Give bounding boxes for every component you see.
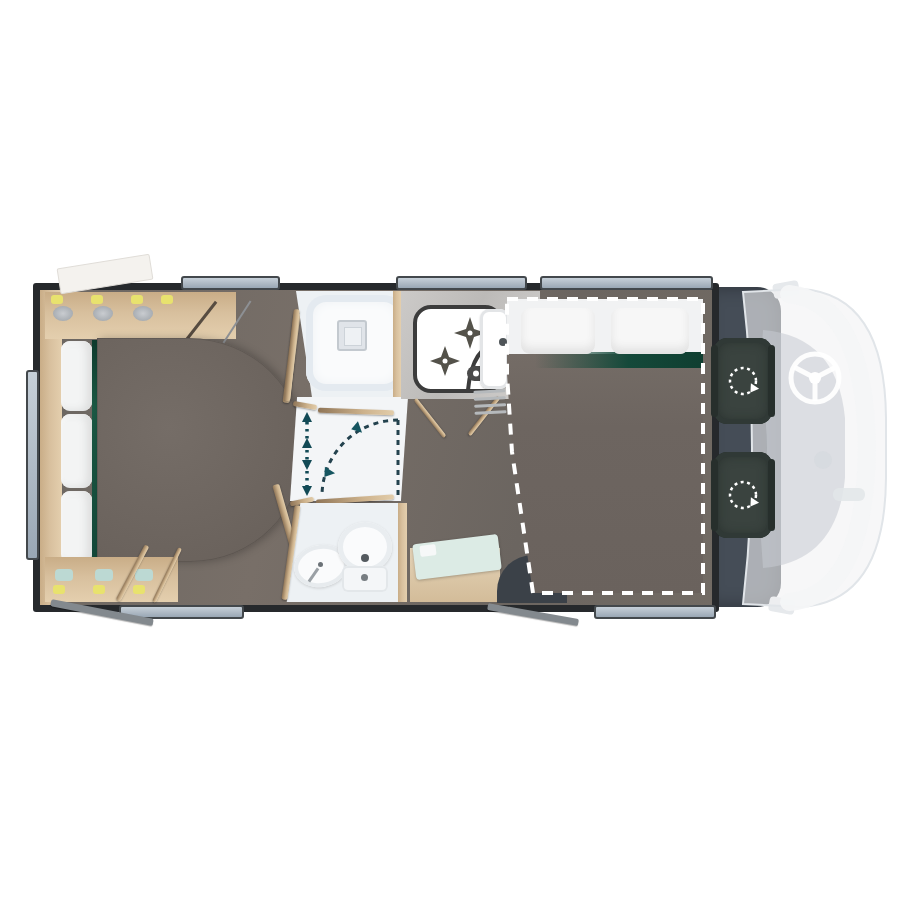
stored-item-icon <box>95 569 113 581</box>
window-top-kitchen <box>396 276 527 290</box>
washroom-side-panel <box>398 503 407 602</box>
vent-grill-icon <box>473 389 506 417</box>
seat-rotation-arrow-icon <box>721 359 765 403</box>
seat-cushion <box>61 414 92 488</box>
basin-drain <box>318 562 323 567</box>
vent-bar <box>474 396 506 401</box>
stored-item-icon <box>91 295 103 304</box>
toilet-base-cap <box>361 574 368 581</box>
swivel-seat-rear <box>714 452 772 538</box>
stored-plate-icon <box>53 306 73 321</box>
ghost-vehicle-front <box>735 278 895 618</box>
stored-item-icon <box>55 569 73 581</box>
walkway-arrow-icon <box>302 412 312 496</box>
bed-outline-dashed <box>505 296 705 596</box>
drain-grate <box>344 327 362 346</box>
window-rear <box>26 370 39 560</box>
board-tag <box>419 544 436 557</box>
stored-item-icon <box>53 585 65 594</box>
vent-bar <box>473 389 505 394</box>
motorhome-floorplan <box>0 0 900 900</box>
vent-bar <box>474 403 506 408</box>
kitchen-divider-panel <box>393 291 401 398</box>
stored-item-icon <box>51 295 63 304</box>
seat-cushion <box>61 491 92 563</box>
toilet-flush <box>361 554 369 562</box>
seat-rotation-arrow-icon <box>721 473 765 517</box>
swivel-seat-front <box>714 338 772 424</box>
stored-item-icon <box>135 569 153 581</box>
stored-item-icon <box>161 295 173 304</box>
annotation-arrows <box>280 390 420 520</box>
stored-item-icon <box>133 585 145 594</box>
overhead-storage <box>45 292 180 339</box>
stored-plate-icon <box>133 306 153 321</box>
window-top-lounge <box>181 276 280 290</box>
toilet-bowl <box>338 522 392 572</box>
stored-item-icon <box>93 585 105 594</box>
door-swing-arc <box>320 420 398 496</box>
dash-detail <box>814 451 832 469</box>
stored-plate-icon <box>93 306 113 321</box>
shower-drain <box>337 320 367 351</box>
vent-bar <box>474 410 506 415</box>
stored-item-icon <box>131 295 143 304</box>
window-top-bedroom <box>540 276 713 290</box>
nose-vent <box>833 488 865 501</box>
window-bottom-bedroom <box>594 605 716 619</box>
seat-cushion <box>61 341 92 411</box>
